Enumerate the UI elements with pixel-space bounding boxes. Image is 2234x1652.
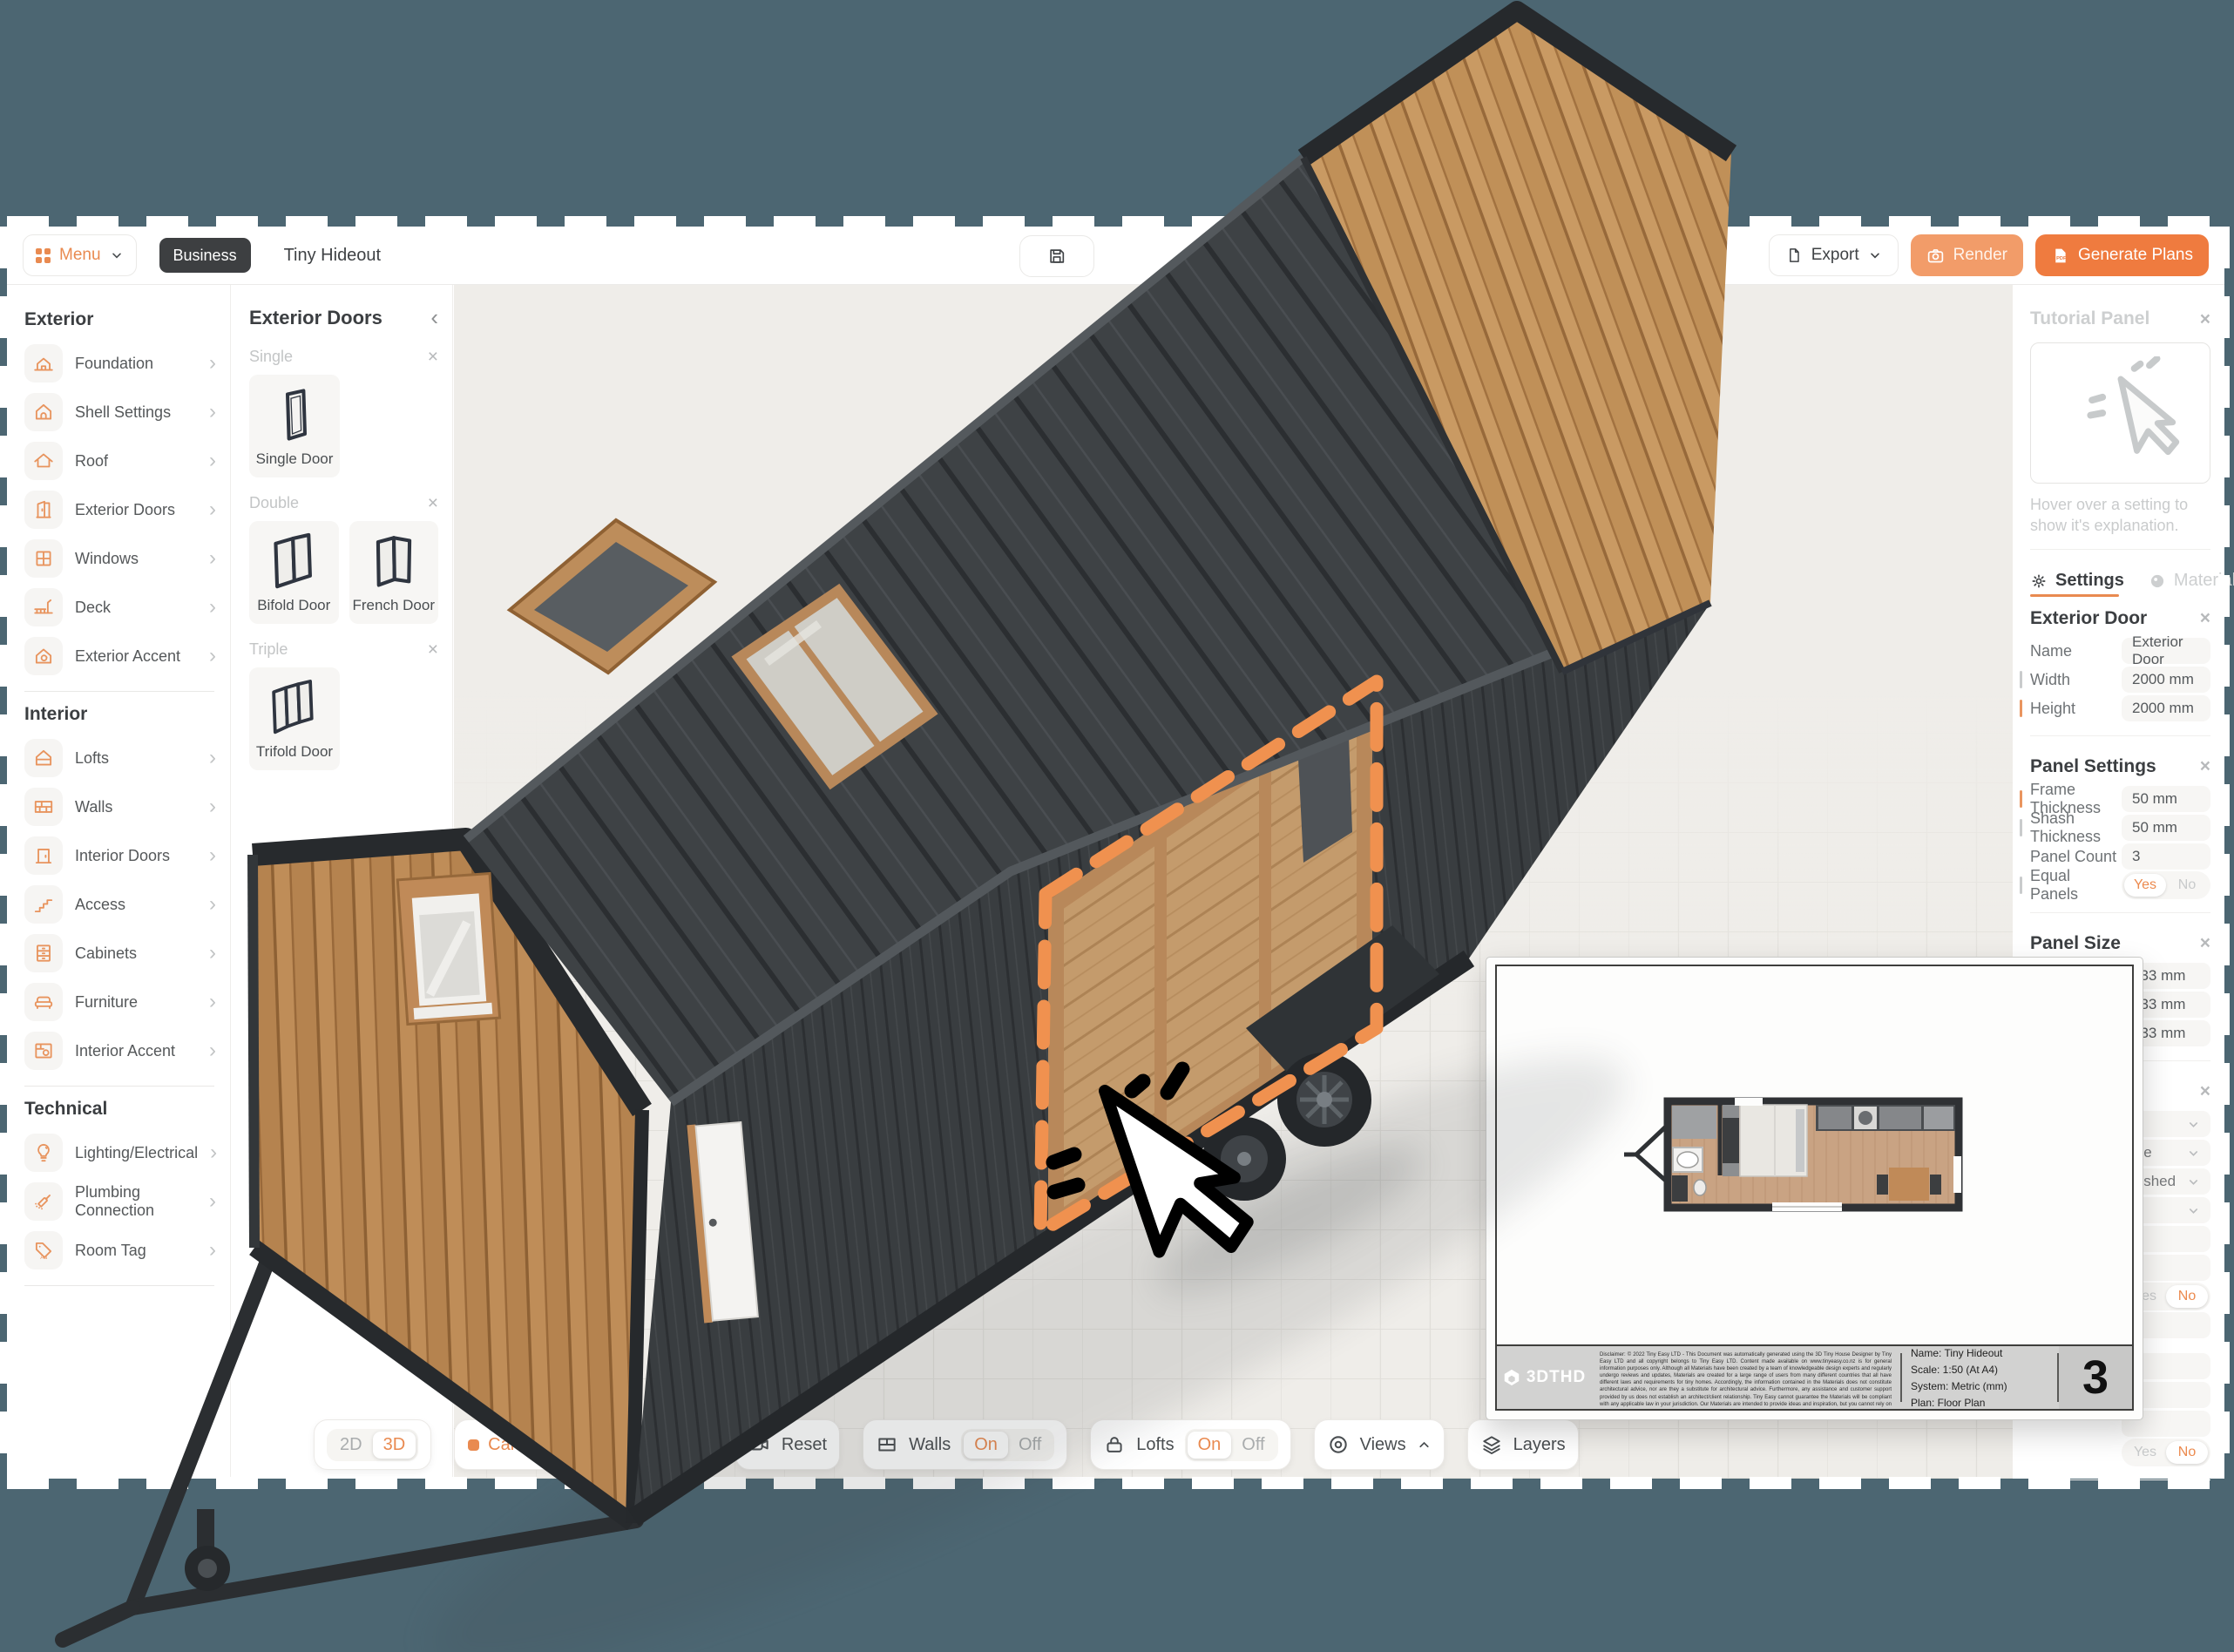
lofts-lock-icon	[1103, 1433, 1126, 1456]
door-card-bifold-door[interactable]: Bifold Door	[249, 521, 339, 624]
sidebar-item-room-tag[interactable]: Aa Room Tag ›	[24, 1226, 221, 1275]
project-title: Tiny Hideout	[284, 246, 382, 266]
sheet-info: Name: Tiny Hideout Scale: 1:50 (At A4) S…	[1902, 1346, 2057, 1409]
tutorial-panel-title: Tutorial Panel	[2030, 308, 2149, 329]
sidebar: Exterior Foundation › Shell Settings › R…	[7, 285, 231, 1479]
window-edge-bottom	[7, 1477, 2224, 1489]
tab-settings[interactable]: Settings	[2030, 571, 2124, 591]
sidebar-item-label: Access	[75, 896, 197, 914]
sidebar-item-label: Windows	[75, 550, 197, 568]
chevron-right-icon: ›	[209, 892, 221, 917]
chevron-right-icon: ›	[209, 498, 221, 522]
door-group-triple: Triple ×	[249, 636, 438, 662]
walls-on[interactable]: On	[964, 1432, 1008, 1459]
export-button[interactable]: Export	[1769, 234, 1899, 276]
height-input[interactable]: 2000 mm	[2122, 695, 2210, 721]
lofts-switch: Lofts OnOff	[1090, 1419, 1290, 1470]
bulb-icon	[24, 1134, 63, 1172]
sidebar-item-foundation[interactable]: Foundation ›	[24, 339, 221, 388]
chevron-right-icon: ›	[209, 746, 221, 770]
option-toggle[interactable]: YesNo	[2122, 1439, 2210, 1466]
door-card-french-door[interactable]: French Door	[349, 521, 439, 624]
chevron-right-icon: ›	[209, 843, 221, 868]
chevron-right-icon: ›	[209, 1039, 221, 1063]
tutorial-preview-box	[2030, 342, 2210, 484]
sidebar-item-access[interactable]: Access ›	[24, 880, 221, 929]
camera-icon	[467, 1439, 480, 1452]
sidebar-item-roof[interactable]: Roof ›	[24, 437, 221, 485]
walkthrough-button[interactable]: Walkthrough	[572, 1433, 700, 1456]
sidebar-item-label: Lighting/Electrical	[75, 1144, 198, 1162]
render-label: Render	[1953, 246, 2007, 265]
page-number: 3	[2059, 1346, 2132, 1409]
shell-icon	[24, 393, 63, 431]
deck-icon	[24, 588, 63, 626]
close-icon[interactable]: ×	[428, 348, 438, 366]
chevron-right-icon: ›	[210, 1141, 222, 1165]
sidebar-item-cabinets[interactable]: Cabinets ›	[24, 929, 221, 978]
layers-icon	[1480, 1433, 1503, 1456]
sidebar-item-label: Plumbing Connection	[75, 1183, 197, 1220]
chevron-right-icon: ›	[209, 400, 221, 424]
export-label: Export	[1811, 246, 1859, 265]
close-icon[interactable]: ×	[2200, 609, 2210, 627]
chevron-right-icon: ›	[209, 1189, 221, 1214]
close-icon[interactable]: ×	[2200, 757, 2210, 775]
loft-icon	[24, 739, 63, 777]
sidebar-item-windows[interactable]: Windows ›	[24, 534, 221, 583]
chevron-right-icon: ›	[209, 1238, 221, 1263]
brand-logo: 3DTHD	[1497, 1346, 1591, 1409]
door-card-single-door[interactable]: Single Door	[249, 375, 340, 477]
divider	[24, 691, 214, 692]
camera-walkthrough-group: Camera Walkthrough	[454, 1419, 713, 1470]
doors-panel-title: Exterior Doors	[249, 307, 382, 329]
interior-door-icon	[24, 836, 63, 875]
chevron-right-icon: ›	[209, 449, 221, 473]
tutorial-caption: Hover over a setting to show it's explan…	[2030, 494, 2210, 537]
exterior-doors-panel: Exterior Doors ‹ Single × Single Door Do…	[232, 285, 453, 1479]
reset-icon	[748, 1433, 771, 1456]
views-icon	[1327, 1433, 1350, 1456]
chevron-down-icon	[1868, 248, 1882, 262]
chevron-right-icon: ›	[209, 990, 221, 1014]
foundation-icon	[24, 344, 63, 383]
chevron-right-icon: ›	[209, 351, 221, 376]
shash-thickness-input[interactable]: 50 mm	[2122, 815, 2210, 841]
width-input[interactable]: 2000 mm	[2122, 667, 2210, 693]
views-button[interactable]: Views	[1314, 1419, 1445, 1470]
chevron-right-icon: ›	[209, 595, 221, 619]
generate-plans-label: Generate Plans	[2078, 246, 2193, 265]
french-door-icon	[361, 531, 427, 595]
sidebar-item-label: Lofts	[75, 749, 197, 768]
name-input[interactable]: Exterior Door	[2122, 638, 2210, 664]
walk-icon	[572, 1433, 594, 1456]
interior-accent-icon	[24, 1032, 63, 1070]
section-title-interior: Interior	[24, 704, 221, 725]
exterior-door-icon	[24, 491, 63, 529]
section-title-technical: Technical	[24, 1099, 221, 1120]
render-button[interactable]: Render	[1911, 234, 2023, 276]
sidebar-item-furniture[interactable]: Furniture ›	[24, 978, 221, 1026]
trifold-door-icon	[261, 677, 328, 741]
lofts-on[interactable]: On	[1188, 1432, 1232, 1459]
sidebar-item-label: Cabinets	[75, 944, 197, 963]
sidebar-item-label: Furniture	[75, 993, 197, 1012]
single-door-icon	[263, 384, 326, 449]
divider	[24, 1285, 214, 1286]
inspector-tabs: Settings Materials	[2030, 562, 2210, 600]
camera-photo-icon	[1926, 247, 1945, 265]
chevron-right-icon: ›	[209, 546, 221, 571]
sidebar-item-label: Foundation	[75, 355, 197, 373]
setting-row-equal-panels: Equal Panels YesNo	[2030, 871, 2210, 900]
document-icon	[1785, 247, 1803, 264]
walls-grid-icon	[876, 1433, 898, 1456]
cabinet-icon	[24, 934, 63, 972]
door-card-trifold-door[interactable]: Trifold Door	[249, 667, 340, 770]
plan-badge: Business	[159, 238, 251, 273]
chevron-down-icon	[110, 248, 124, 262]
close-icon[interactable]: ×	[2200, 934, 2210, 952]
roof-icon	[24, 442, 63, 480]
section-panel-settings: Panel Settings ×	[2030, 748, 2210, 785]
top-bar: Menu Business Tiny Hideout Export	[7, 227, 2224, 285]
walls-switch: Walls OnOff	[863, 1419, 1067, 1470]
sidebar-item-label: Deck	[75, 599, 197, 617]
sidebar-item-lofts[interactable]: Lofts ›	[24, 734, 221, 782]
doors-panel-groups: Single × Single Door Double × Bifold Doo…	[249, 343, 438, 770]
sidebar-item-label: Walls	[75, 798, 197, 816]
equal-panels-toggle[interactable]: YesNo	[2122, 871, 2210, 899]
sofa-icon	[24, 983, 63, 1021]
lofts-off[interactable]: Off	[1231, 1432, 1275, 1459]
save-button[interactable]	[1019, 235, 1094, 277]
exterior-accent-icon	[24, 637, 63, 675]
cursor-icon	[2055, 356, 2186, 470]
jockey-wheel	[185, 1509, 230, 1591]
door-group-single: Single ×	[249, 343, 438, 369]
sidebar-item-shell-settings[interactable]: Shell Settings ›	[24, 388, 221, 437]
view-toolbar: 2D3D Camera Walkthrough Reset Walls OnOf…	[314, 1419, 1579, 1470]
section-title-exterior: Exterior	[24, 309, 221, 330]
sidebar-item-label: Interior Accent	[75, 1042, 197, 1060]
sidebar-item-deck[interactable]: Deck ›	[24, 583, 221, 632]
bifold-door-icon	[261, 531, 327, 595]
stairs-icon	[24, 885, 63, 924]
tag-icon: Aa	[24, 1231, 63, 1269]
setting-row-height: Height 2000 mm	[2030, 694, 2210, 723]
disclaimer-text: Disclaimer: © 2022 Tiny Easy LTD - This …	[1591, 1346, 1900, 1409]
sidebar-item-label: Roof	[75, 452, 197, 471]
svg-text:PDF: PDF	[2056, 255, 2067, 261]
chevron-right-icon: ›	[209, 644, 221, 668]
gear-icon	[2030, 572, 2048, 590]
sidebar-item-label: Exterior Accent	[75, 647, 197, 666]
sidebar-item-label: Room Tag	[75, 1242, 197, 1260]
title-block: 3DTHD Disclaimer: © 2022 Tiny Easy LTD -…	[1497, 1344, 2132, 1409]
close-icon[interactable]: ×	[2200, 310, 2210, 328]
section-exterior-door: Exterior Door ×	[2030, 600, 2210, 637]
sidebar-item-label: Shell Settings	[75, 403, 197, 422]
divider	[24, 1086, 214, 1087]
sidebar-item-lighting-electrical[interactable]: Lighting/Electrical ›	[24, 1128, 221, 1177]
menu-grid-icon	[36, 248, 51, 263]
close-icon[interactable]: ×	[2200, 1082, 2210, 1100]
sidebar-item-exterior-doors[interactable]: Exterior Doors ›	[24, 485, 221, 534]
dimension-toggle-3d[interactable]: 3D	[373, 1432, 416, 1459]
materials-icon	[2149, 572, 2166, 590]
tab-materials[interactable]: Materials	[2149, 571, 2234, 591]
svg-text:Aa: Aa	[40, 1255, 47, 1261]
menu-button[interactable]: Menu	[23, 234, 137, 276]
camera-button[interactable]: Camera	[467, 1435, 550, 1455]
setting-row-width: Width 2000 mm	[2030, 666, 2210, 694]
sidebar-item-plumbing-connection[interactable]: Plumbing Connection ›	[24, 1177, 221, 1226]
layers-button[interactable]: Layers	[1467, 1419, 1579, 1470]
dimension-toggle-2d[interactable]: 2D	[329, 1432, 373, 1459]
reset-button[interactable]: Reset	[735, 1419, 840, 1470]
plumbing-icon	[24, 1182, 63, 1221]
frame-thickness-input[interactable]: 50 mm	[2122, 786, 2210, 812]
sidebar-item-exterior-accent[interactable]: Exterior Accent ›	[24, 632, 221, 680]
menu-label: Menu	[59, 246, 101, 265]
sidebar-item-label: Interior Doors	[75, 847, 197, 865]
close-icon[interactable]: ×	[428, 640, 438, 659]
floor-plan-sheet: 3DTHD Disclaimer: © 2022 Tiny Easy LTD -…	[1486, 957, 2143, 1420]
door-group-double: Double ×	[249, 490, 438, 516]
chevron-right-icon: ›	[209, 795, 221, 819]
wall-icon	[24, 788, 63, 826]
generate-plans-button[interactable]: PDF Generate Plans	[2035, 234, 2209, 276]
walls-off[interactable]: Off	[1008, 1432, 1052, 1459]
sidebar-item-interior-accent[interactable]: Interior Accent ›	[24, 1026, 221, 1075]
panel-count-input[interactable]: 3	[2122, 843, 2210, 870]
sidebar-item-label: Exterior Doors	[75, 501, 197, 519]
save-icon	[1047, 247, 1066, 266]
setting-row-shash-thickness: Shash Thickness 50 mm	[2030, 814, 2210, 843]
pdf-icon: PDF	[2051, 247, 2069, 265]
chevron-up-icon	[1417, 1438, 1432, 1452]
sidebar-item-walls[interactable]: Walls ›	[24, 782, 221, 831]
window-icon	[24, 539, 63, 578]
dimension-toggle: 2D3D	[314, 1419, 431, 1470]
setting-row-name: Name Exterior Door	[2030, 637, 2210, 666]
sidebar-item-interior-doors[interactable]: Interior Doors ›	[24, 831, 221, 880]
close-icon[interactable]: ×	[428, 494, 438, 512]
setting-row-toggle: YesNo	[2030, 1439, 2210, 1467]
collapse-panel-icon[interactable]: ‹	[430, 304, 438, 331]
chevron-right-icon: ›	[209, 941, 221, 965]
